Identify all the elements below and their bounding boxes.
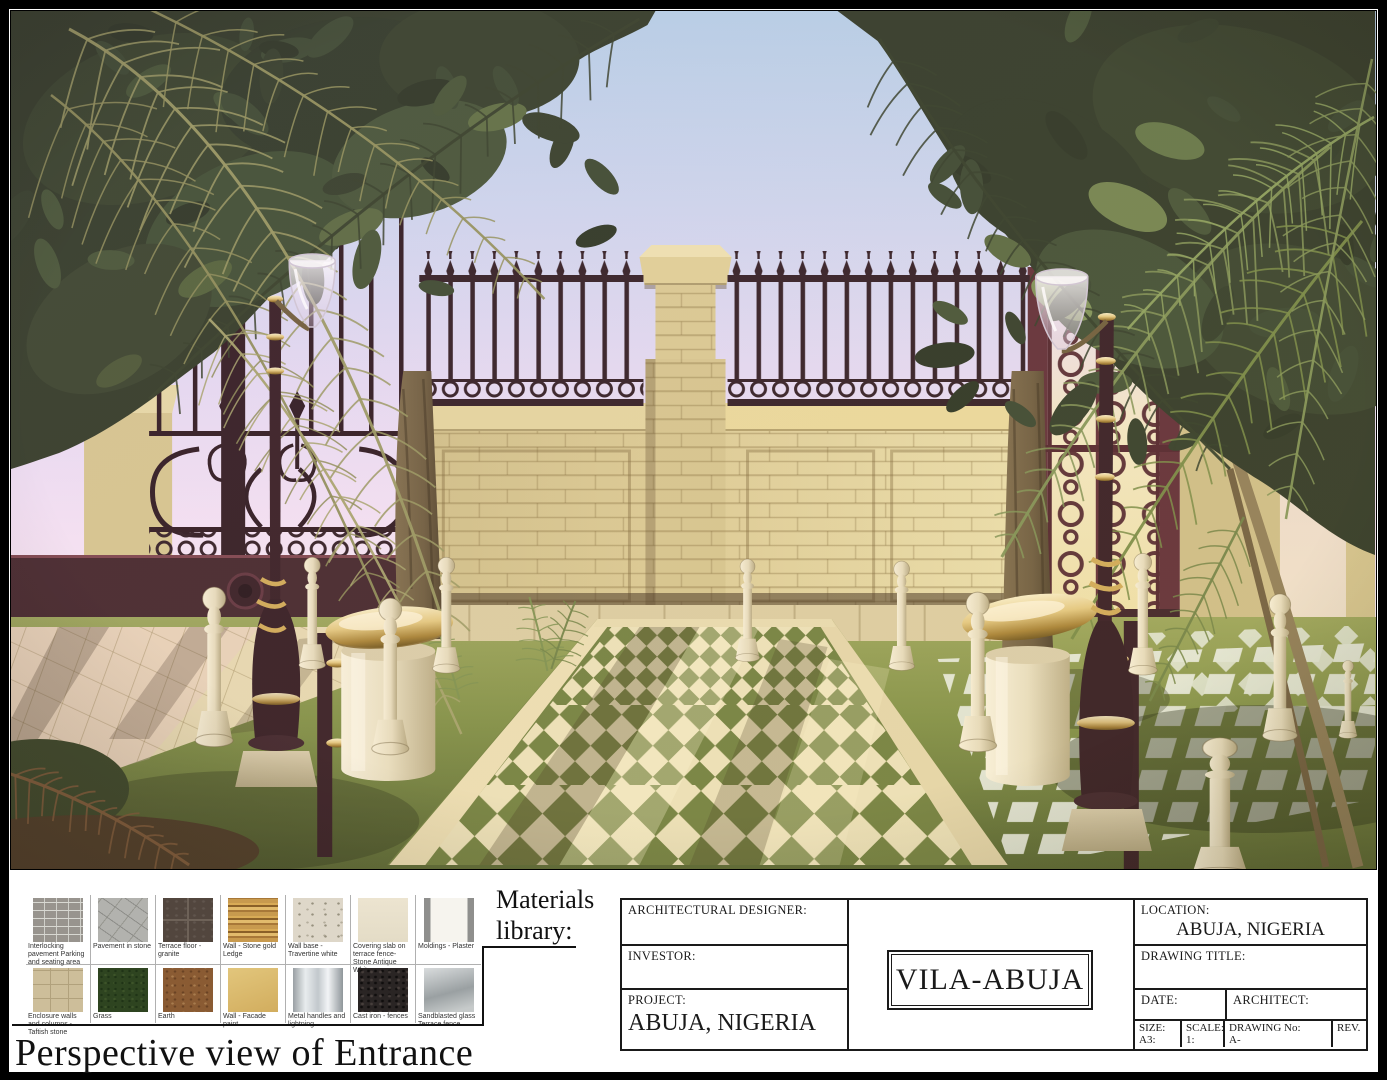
field-architect: ARCHITECT: bbox=[1227, 990, 1366, 1019]
material-item: Moldings - Plaster bbox=[416, 895, 481, 965]
field-label: DRAWING TITLE: bbox=[1141, 949, 1360, 964]
drawing-no-value: A- bbox=[1229, 1034, 1327, 1046]
materials-panel-border-right bbox=[482, 946, 484, 1026]
material-swatch-plaster bbox=[424, 898, 474, 942]
entrance-render-scene bbox=[11, 11, 1376, 869]
field-rev: REV. bbox=[1333, 1021, 1366, 1047]
material-label: Earth bbox=[158, 1013, 218, 1021]
location-value: ABUJA, NIGERIA bbox=[1141, 919, 1360, 941]
field-drawing-no: DRAWING No: A- bbox=[1225, 1021, 1333, 1047]
field-location: LOCATION: ABUJA, NIGERIA bbox=[1135, 900, 1366, 946]
material-label: Sandblasted glass Terrace fence bbox=[418, 1013, 479, 1029]
material-item: Earth bbox=[156, 965, 221, 1023]
presentation-sheet: Materials library: Interlocking pavement… bbox=[9, 9, 1378, 1072]
project-title-box-inner-border bbox=[891, 954, 1089, 1006]
material-item: Wall base - Travertine white bbox=[286, 895, 351, 965]
project-value: ABUJA, NIGERIA bbox=[628, 1010, 841, 1037]
material-swatch-sandblasted-glass bbox=[424, 968, 474, 1012]
material-swatch-pavement-stone bbox=[98, 898, 148, 942]
materials-panel-border-top bbox=[482, 946, 576, 948]
field-date: DATE: bbox=[1135, 990, 1227, 1019]
material-label: Cast iron - fences bbox=[353, 1013, 413, 1021]
material-swatch-grass bbox=[98, 968, 148, 1012]
material-item: Enclosure walls and columns - Taftish st… bbox=[26, 965, 91, 1023]
field-drawing-title: DRAWING TITLE: bbox=[1135, 946, 1366, 990]
project-title-box: VILA-ABUJA bbox=[887, 950, 1093, 1010]
material-item: Grass bbox=[91, 965, 156, 1023]
sheet-title: Perspective view of Entrance bbox=[15, 1031, 473, 1075]
row-date-architect: DATE: ARCHITECT: bbox=[1135, 990, 1366, 1021]
material-item: Sandblasted glass Terrace fence bbox=[416, 965, 481, 1023]
field-label: ARCHITECTURAL DESIGNER: bbox=[628, 903, 841, 918]
material-swatch-granite bbox=[163, 898, 213, 942]
size-value: A3: bbox=[1139, 1034, 1176, 1046]
material-label: Terrace floor - granite bbox=[158, 943, 218, 959]
material-swatch-travertine bbox=[293, 898, 343, 942]
field-label: SIZE: bbox=[1139, 1022, 1176, 1034]
material-label: Wall base - Travertine white bbox=[288, 943, 348, 959]
material-label: Interlocking pavement Parking and seatin… bbox=[28, 943, 88, 967]
material-label: Metal handles and lightning bbox=[288, 1013, 348, 1029]
field-project: PROJECT: ABUJA, NIGERIA bbox=[622, 990, 847, 1045]
materials-library-heading: Materials library: bbox=[496, 884, 602, 946]
field-size: SIZE: A3: bbox=[1135, 1021, 1182, 1047]
material-swatch-antique-white bbox=[358, 898, 408, 942]
row-size-scale-drawingno-rev: SIZE: A3: SCALE: 1: DRAWING No: A- REV. bbox=[1135, 1021, 1366, 1047]
field-label: ARCHITECT: bbox=[1233, 993, 1360, 1008]
material-swatch-metal bbox=[293, 968, 343, 1012]
material-swatch-cast-iron bbox=[358, 968, 408, 1012]
title-block-left-column: ARCHITECTURAL DESIGNER: INVESTOR: PROJEC… bbox=[622, 900, 849, 1049]
field-label: DATE: bbox=[1141, 993, 1219, 1008]
material-item: Cast iron - fences bbox=[351, 965, 416, 1023]
vignette bbox=[11, 11, 1376, 869]
field-label: SCALE: bbox=[1186, 1022, 1219, 1034]
materials-library-grid: Interlocking pavement Parking and seatin… bbox=[26, 895, 481, 1023]
scale-value: 1: bbox=[1186, 1034, 1219, 1046]
material-item: Terrace floor - granite bbox=[156, 895, 221, 965]
field-label: INVESTOR: bbox=[628, 949, 841, 964]
material-item: Wall - Facade paint bbox=[221, 965, 286, 1023]
field-label: DRAWING No: bbox=[1229, 1022, 1327, 1034]
material-label: Pavement in stone bbox=[93, 943, 153, 951]
material-swatch-earth bbox=[163, 968, 213, 1012]
material-item: Metal handles and lightning bbox=[286, 965, 351, 1023]
title-block-center: VILA-ABUJA bbox=[849, 900, 1135, 1049]
perspective-render bbox=[10, 10, 1377, 870]
field-investor: INVESTOR: bbox=[622, 946, 847, 990]
field-scale: SCALE: 1: bbox=[1182, 1021, 1225, 1047]
material-label: Wall - Stone gold Ledge bbox=[223, 943, 283, 959]
field-architectural-designer: ARCHITECTURAL DESIGNER: bbox=[622, 900, 847, 946]
field-label: REV. bbox=[1337, 1022, 1362, 1034]
material-item: Interlocking pavement Parking and seatin… bbox=[26, 895, 91, 965]
material-swatch-interlocking-pavement bbox=[33, 898, 83, 942]
field-label: LOCATION: bbox=[1141, 903, 1360, 918]
material-swatch-taftish-stone bbox=[33, 968, 83, 1012]
material-label: Moldings - Plaster bbox=[418, 943, 479, 951]
material-swatch-stone-gold-ledge bbox=[228, 898, 278, 942]
material-label: Wall - Facade paint bbox=[223, 1013, 283, 1029]
material-item: Wall - Stone gold Ledge bbox=[221, 895, 286, 965]
material-item: Pavement in stone bbox=[91, 895, 156, 965]
material-swatch-facade-paint bbox=[228, 968, 278, 1012]
material-item: Covering slab on terrace fence- Stone An… bbox=[351, 895, 416, 965]
title-block-right-column: LOCATION: ABUJA, NIGERIA DRAWING TITLE: … bbox=[1133, 900, 1366, 1049]
materials-panel-border-bottom bbox=[12, 1024, 484, 1026]
title-block: ARCHITECTURAL DESIGNER: INVESTOR: PROJEC… bbox=[620, 898, 1368, 1051]
field-label: PROJECT: bbox=[628, 993, 841, 1008]
material-label: Grass bbox=[93, 1013, 153, 1021]
